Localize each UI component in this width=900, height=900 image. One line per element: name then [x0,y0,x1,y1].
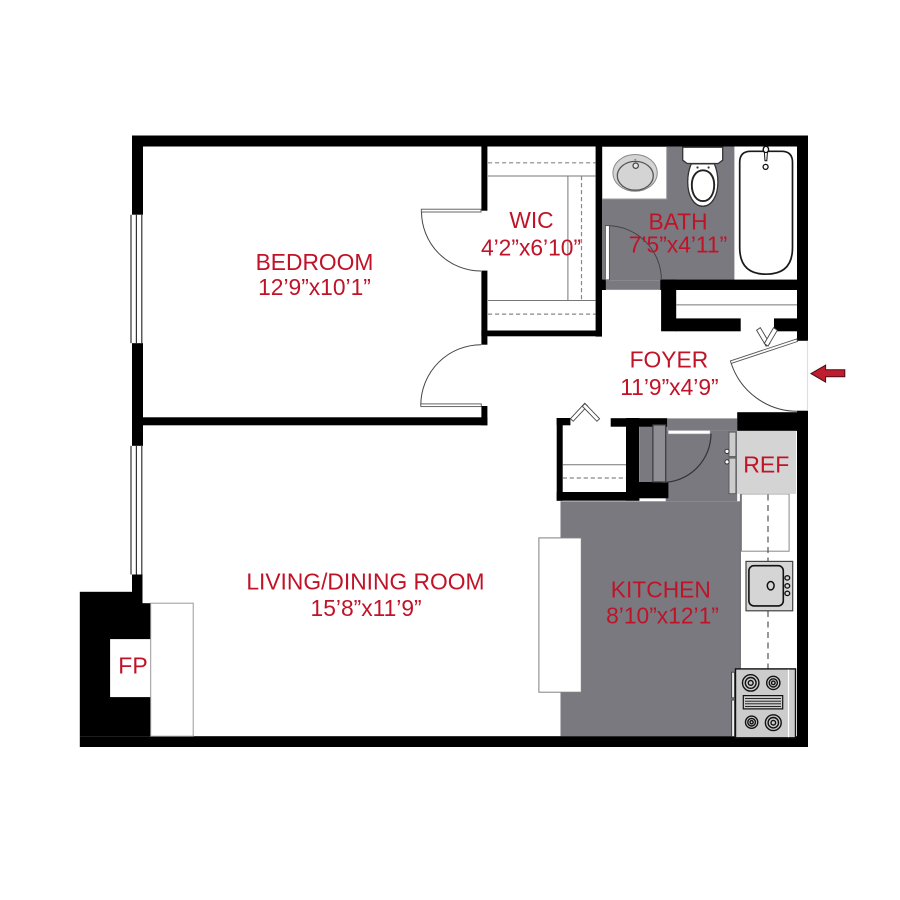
svg-text:4’2”x6’10”: 4’2”x6’10” [481,235,581,261]
svg-text:11’9”x4’9”: 11’9”x4’9” [620,374,718,400]
svg-text:8’10”x12’1”: 8’10”x12’1” [606,602,719,628]
svg-text:FOYER: FOYER [630,346,709,372]
svg-text:15’8”x11’9”: 15’8”x11’9” [311,595,422,621]
svg-text:WIC: WIC [509,207,553,233]
svg-text:REF: REF [743,451,789,477]
svg-text:12’9”x10’1”: 12’9”x10’1” [258,274,371,300]
svg-text:7’5”x4’11”: 7’5”x4’11” [629,232,727,258]
svg-text:LIVING/DINING ROOM: LIVING/DINING ROOM [246,569,484,595]
svg-text:KITCHEN: KITCHEN [611,577,711,603]
svg-text:BEDROOM: BEDROOM [256,249,374,275]
svg-text:FP: FP [118,652,147,678]
